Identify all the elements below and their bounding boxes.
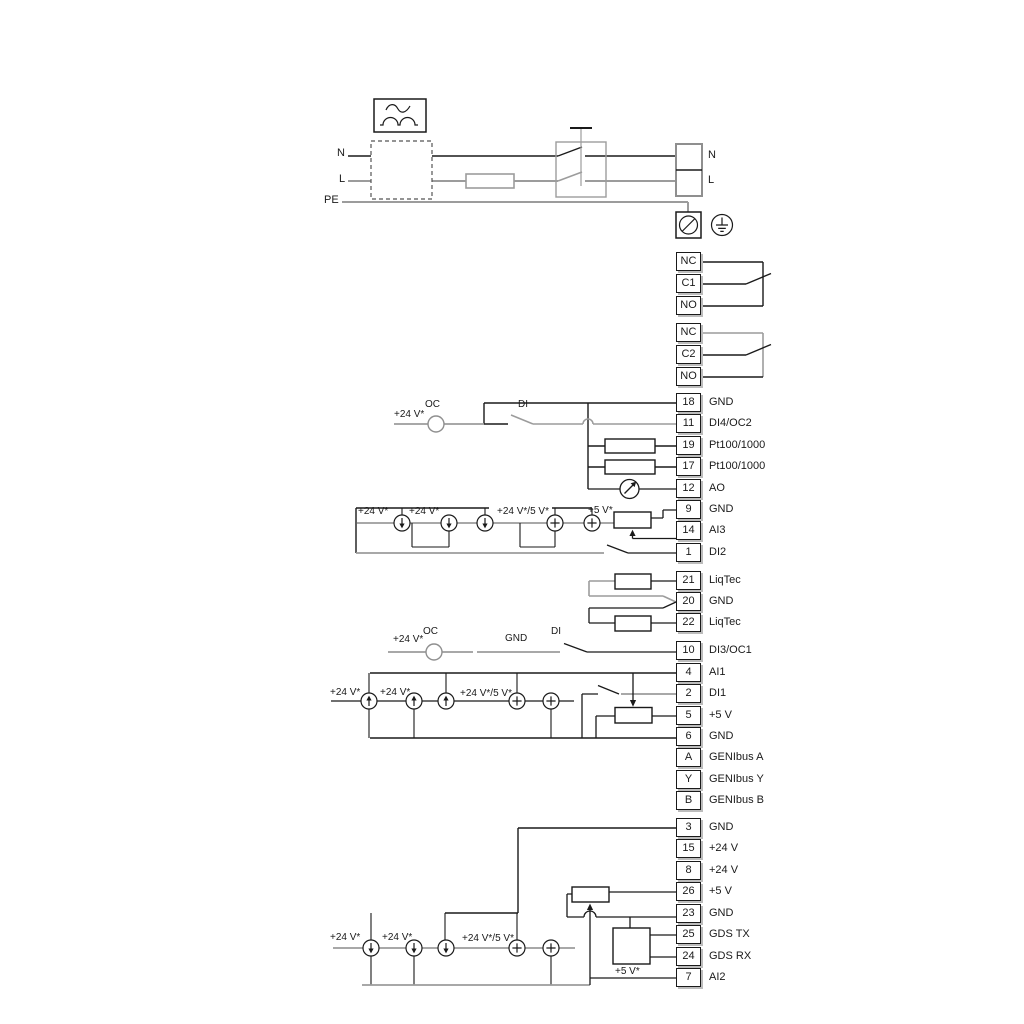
terminal-number: 14 <box>676 521 701 540</box>
potentiometer-icon <box>572 887 609 902</box>
label-n-right: N <box>708 149 716 161</box>
terminal-label: Pt100/1000 <box>709 460 765 472</box>
wiring-diagram: N L PE N L NC C1 NO NC C2 NO 18GND 11DI4… <box>0 0 1024 1024</box>
relay-cell: C1 <box>676 274 701 293</box>
terminal-number: B <box>676 791 701 810</box>
terminal-number: 25 <box>676 925 701 944</box>
relay-cell: NC <box>676 252 701 271</box>
relay-cell: NO <box>676 296 701 315</box>
terminal-label: GENIbus B <box>709 794 764 806</box>
di-label: DI <box>518 399 528 410</box>
voltage-label: +24 V* <box>380 687 410 698</box>
terminal-label: AI1 <box>709 666 726 678</box>
ground-icon <box>712 215 733 236</box>
terminal-number: 19 <box>676 436 701 455</box>
relay-cell: C2 <box>676 345 701 364</box>
terminal-label: +5 V <box>709 709 732 721</box>
terminal-label: +24 V <box>709 842 738 854</box>
oc-output-icon <box>428 416 444 432</box>
label-l-right: L <box>708 174 714 186</box>
terminal-number: 20 <box>676 592 701 611</box>
earth-terminal-icon <box>676 212 701 238</box>
gnd-label: GND <box>505 633 527 644</box>
voltage-label: +24 V* <box>330 687 360 698</box>
terminal-number: 5 <box>676 706 701 725</box>
terminal-number: A <box>676 748 701 767</box>
terminal-number: Y <box>676 770 701 789</box>
ai2-gds-wiring <box>333 828 676 985</box>
potentiometer-icon <box>615 708 652 724</box>
terminal-label: GND <box>709 907 733 919</box>
terminal-number: 26 <box>676 882 701 901</box>
terminal-number: 3 <box>676 818 701 837</box>
label-n-left: N <box>337 147 345 159</box>
terminal-number: 18 <box>676 393 701 412</box>
terminal-label: +24 V <box>709 864 738 876</box>
terminal-number: 2 <box>676 684 701 703</box>
terminal-number: 6 <box>676 727 701 746</box>
label-l-left: L <box>339 173 345 185</box>
terminal-label: GND <box>709 503 733 515</box>
terminal-number: 4 <box>676 663 701 682</box>
relay-cell: NO <box>676 367 701 386</box>
terminal-number: 7 <box>676 968 701 987</box>
terminal-label: GND <box>709 396 733 408</box>
pt100-sensors <box>588 439 676 474</box>
di3-oc1-wiring <box>388 644 676 661</box>
ao-meter-wiring <box>588 480 676 499</box>
terminal-number: 10 <box>676 641 701 660</box>
voltage-label: +24 V* <box>358 506 388 517</box>
mains-symbol-icon <box>374 99 426 132</box>
terminal-label: DI2 <box>709 546 726 558</box>
terminal-label: GND <box>709 821 733 833</box>
terminal-number: 23 <box>676 904 701 923</box>
voltage-label: +24 V* <box>393 634 423 645</box>
relay-cell: NC <box>676 323 701 342</box>
di-label: DI <box>551 626 561 637</box>
supply-unit-box <box>371 141 432 199</box>
relay1-wiring <box>702 262 771 306</box>
terminal-label: Pt100/1000 <box>709 439 765 451</box>
terminal-label: GDS RX <box>709 950 751 962</box>
voltage-label: +24 V*/5 V* <box>460 688 512 699</box>
oc-label: OC <box>423 626 438 637</box>
terminal-label: GND <box>709 730 733 742</box>
voltage-label: +24 V*/5 V* <box>497 506 549 517</box>
voltage-label: +24 V*/5 V* <box>462 933 514 944</box>
voltage-label: +5 V* <box>615 966 640 977</box>
oc-label: OC <box>425 399 440 410</box>
terminal-label: DI3/OC1 <box>709 644 752 656</box>
terminal-label: LiqTec <box>709 574 741 586</box>
relay2-wiring <box>702 333 771 377</box>
terminal-number: 12 <box>676 479 701 498</box>
terminal-label: DI1 <box>709 687 726 699</box>
resistor-icon <box>605 460 655 474</box>
resistor-icon <box>605 439 655 453</box>
terminal-number: 9 <box>676 500 701 519</box>
terminal-number: 8 <box>676 861 701 880</box>
terminal-number: 21 <box>676 571 701 590</box>
fuse-icon <box>466 174 514 188</box>
terminal-label: GENIbus Y <box>709 773 764 785</box>
oc-output-icon <box>426 644 442 660</box>
label-pe: PE <box>324 194 339 206</box>
terminal-label: DI4/OC2 <box>709 417 752 429</box>
mains-terminal-block <box>676 144 702 196</box>
terminal-number: 15 <box>676 839 701 858</box>
terminal-number: 1 <box>676 543 701 562</box>
terminal-label: AI3 <box>709 524 726 536</box>
terminal-label: GDS TX <box>709 928 750 940</box>
terminal-label: AI2 <box>709 971 726 983</box>
terminal-label: +5 V <box>709 885 732 897</box>
gds-sensor-box <box>613 928 650 964</box>
resistor-icon <box>615 616 651 631</box>
voltage-label: +24 V* <box>330 932 360 943</box>
terminal-label: GND <box>709 595 733 607</box>
voltage-label: +24 V* <box>394 409 424 420</box>
terminal-number: 22 <box>676 613 701 632</box>
terminal-label: AO <box>709 482 725 494</box>
resistor-icon <box>615 574 651 589</box>
potentiometer-icon <box>614 512 651 528</box>
terminal-label: GENIbus A <box>709 751 763 763</box>
terminal-number: 11 <box>676 414 701 433</box>
voltage-label: +24 V* <box>382 932 412 943</box>
liqtec-wiring <box>589 574 676 631</box>
voltage-label: +24 V* <box>409 506 439 517</box>
terminal-label: LiqTec <box>709 616 741 628</box>
ai1-sensor-wiring <box>331 673 676 738</box>
terminal-number: 17 <box>676 457 701 476</box>
voltage-label: +5 V* <box>588 505 613 516</box>
terminal-number: 24 <box>676 947 701 966</box>
